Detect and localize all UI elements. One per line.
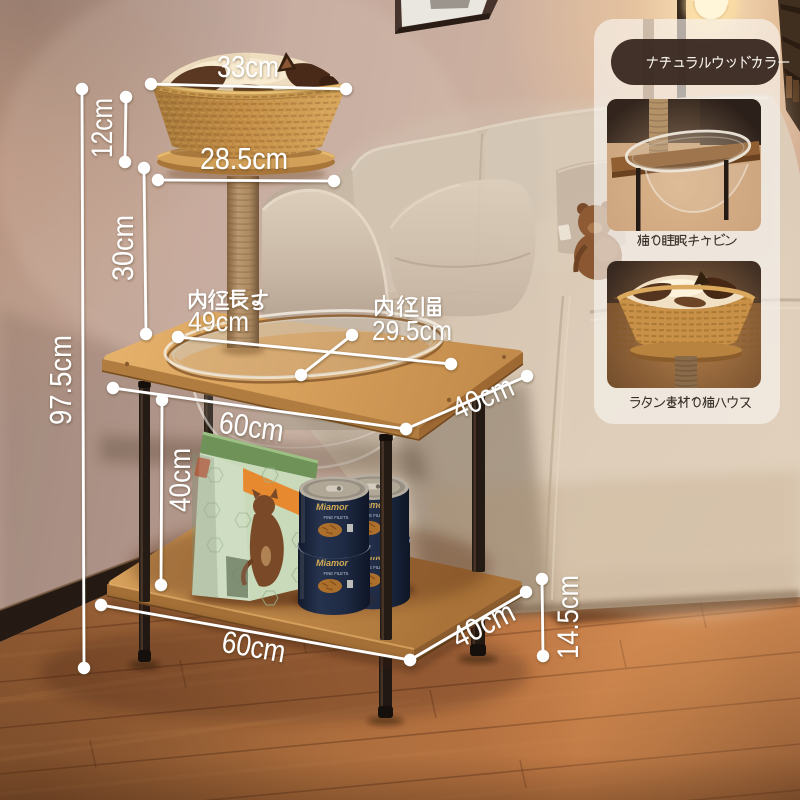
svg-text:29.5cm: 29.5cm xyxy=(372,315,452,346)
svg-text:Miamor: Miamor xyxy=(316,558,349,568)
svg-text:33cm: 33cm xyxy=(217,49,279,84)
svg-text:49cm: 49cm xyxy=(188,306,249,337)
svg-text:40cm: 40cm xyxy=(164,448,197,512)
svg-text:FINE FILETS: FINE FILETS xyxy=(324,571,349,576)
svg-text:FINE FILETS: FINE FILETS xyxy=(324,515,349,520)
svg-text:Miamor: Miamor xyxy=(316,502,349,512)
svg-text:28.5cm: 28.5cm xyxy=(200,141,288,176)
svg-text:14.5cm: 14.5cm xyxy=(552,575,585,659)
svg-text:97.5cm: 97.5cm xyxy=(43,335,78,425)
svg-text:30cm: 30cm xyxy=(107,215,140,281)
svg-text:12cm: 12cm xyxy=(86,98,119,158)
